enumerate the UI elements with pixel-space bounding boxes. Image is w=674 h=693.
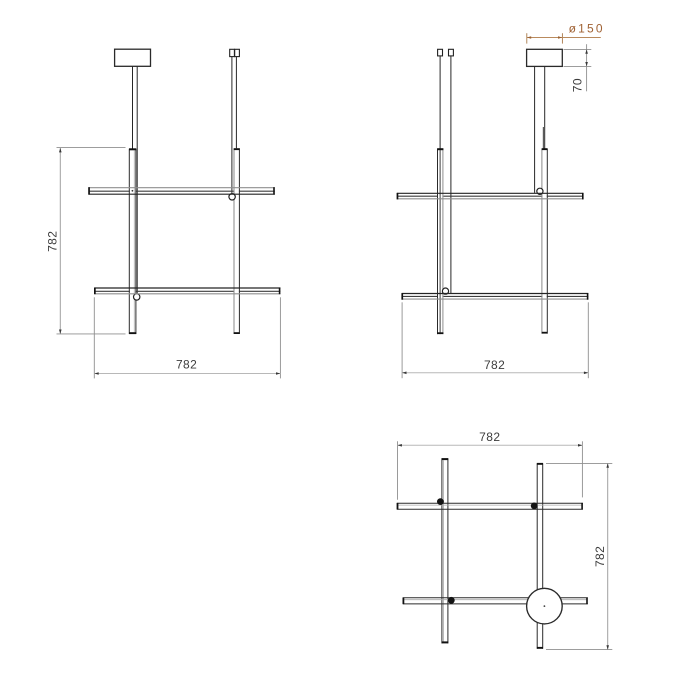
svg-text:782: 782	[479, 430, 500, 444]
svg-text:ø150: ø150	[569, 22, 605, 36]
svg-text:70: 70	[571, 78, 585, 92]
svg-text:782: 782	[484, 358, 505, 372]
svg-text:782: 782	[593, 546, 607, 567]
svg-text:782: 782	[176, 358, 197, 372]
svg-text:782: 782	[45, 231, 59, 252]
